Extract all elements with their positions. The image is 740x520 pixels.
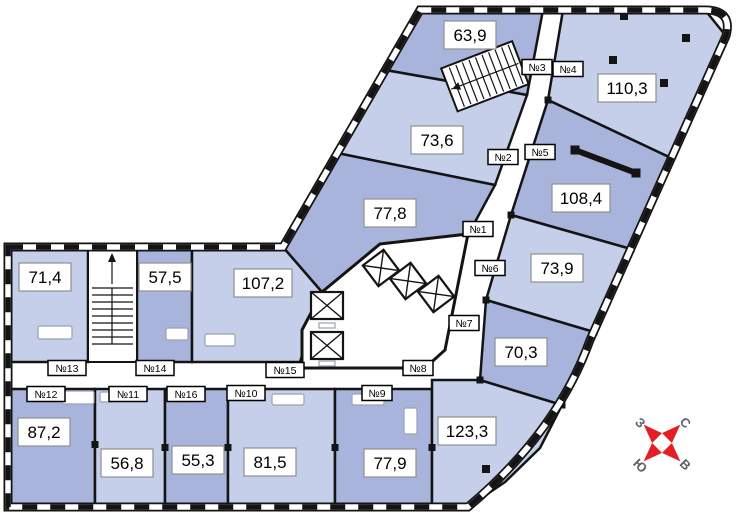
svg-text:№7: №7 [455,318,472,330]
area-label[interactable]: 107,2 [234,269,292,297]
room-87-2[interactable] [8,389,95,507]
svg-text:№1: №1 [469,224,486,236]
room-77-9[interactable] [335,389,432,507]
apartment-tag[interactable]: №4 [553,62,583,77]
svg-text:№12: №12 [35,389,58,401]
apartment-tag[interactable]: №9 [362,386,392,401]
area-label[interactable]: 55,3 [172,446,224,474]
apartment-tag[interactable]: №1 [463,222,493,237]
area-label[interactable]: 73,6 [411,126,463,154]
room-56-8[interactable] [95,389,165,507]
apartment-tag[interactable]: №16 [167,387,205,402]
svg-text:№14: №14 [144,363,167,375]
svg-text:№13: №13 [56,363,79,375]
apartment-tag[interactable]: №15 [266,363,304,378]
area-label[interactable]: 110,3 [598,74,656,102]
area-label[interactable]: 73,9 [531,254,583,282]
apartment-tag[interactable]: №14 [136,361,174,376]
svg-text:73,9: 73,9 [540,259,573,278]
stairwell-left [88,247,137,362]
svg-text:81,5: 81,5 [253,453,286,472]
svg-text:110,3: 110,3 [606,79,647,98]
apartment-tag[interactable]: №3 [522,60,552,75]
svg-text:№5: №5 [531,147,548,159]
svg-text:56,8: 56,8 [110,454,143,473]
floor-plan: 63,9 110,3 73,6 108,4 77,8 73,9 70,3 123… [0,0,740,520]
apartment-tag[interactable]: №6 [475,261,505,276]
apartment-tag[interactable]: №5 [525,145,555,160]
svg-text:108,4: 108,4 [560,189,603,208]
svg-text:№6: №6 [481,263,498,275]
svg-text:73,6: 73,6 [420,131,453,150]
apartment-tag[interactable]: №13 [48,361,86,376]
compass-rose: С В Ю З [625,406,699,480]
area-label[interactable]: 108,4 [552,184,610,212]
svg-text:71,4: 71,4 [28,268,61,287]
svg-text:55,3: 55,3 [181,451,214,470]
svg-text:№2: №2 [494,152,511,164]
apartment-tag[interactable]: №10 [227,386,265,401]
svg-text:63,9: 63,9 [453,26,486,45]
floor-plan-page: 63,9 110,3 73,6 108,4 77,8 73,9 70,3 123… [0,0,740,520]
apartment-tag[interactable]: №2 [488,150,518,165]
compass-north-label: С [677,414,695,432]
svg-text:70,3: 70,3 [504,343,537,362]
svg-text:77,8: 77,8 [373,204,406,223]
svg-text:57,5: 57,5 [148,268,181,287]
svg-text:№3: №3 [528,62,545,74]
area-label[interactable]: 56,8 [101,449,153,477]
svg-text:№11: №11 [117,389,139,401]
apartment-tag[interactable]: №12 [27,387,65,402]
area-label[interactable]: 81,5 [244,448,296,476]
svg-text:№10: №10 [235,388,258,400]
area-label[interactable]: 87,2 [18,418,70,446]
svg-text:77,9: 77,9 [373,454,406,473]
svg-text:87,2: 87,2 [27,423,60,442]
area-label[interactable]: 70,3 [495,338,547,366]
area-label[interactable]: 63,9 [444,21,496,49]
apartment-tag[interactable]: №7 [449,316,479,331]
svg-text:107,2: 107,2 [242,274,285,293]
svg-text:№8: №8 [409,363,426,375]
svg-text:№15: №15 [274,365,297,377]
area-label[interactable]: 123,3 [438,417,496,445]
area-label[interactable]: 57,5 [139,263,191,291]
svg-text:№16: №16 [175,389,198,401]
area-label[interactable]: 77,9 [364,449,416,477]
svg-text:№9: №9 [368,388,385,400]
area-label[interactable]: 77,8 [364,199,416,227]
svg-text:№4: №4 [559,64,576,76]
apartment-tag[interactable]: №11 [109,387,147,402]
apartment-tag[interactable]: №8 [403,361,433,376]
svg-text:123,3: 123,3 [446,422,489,441]
compass-east-label: В [677,456,694,473]
area-label[interactable]: 71,4 [19,263,71,291]
